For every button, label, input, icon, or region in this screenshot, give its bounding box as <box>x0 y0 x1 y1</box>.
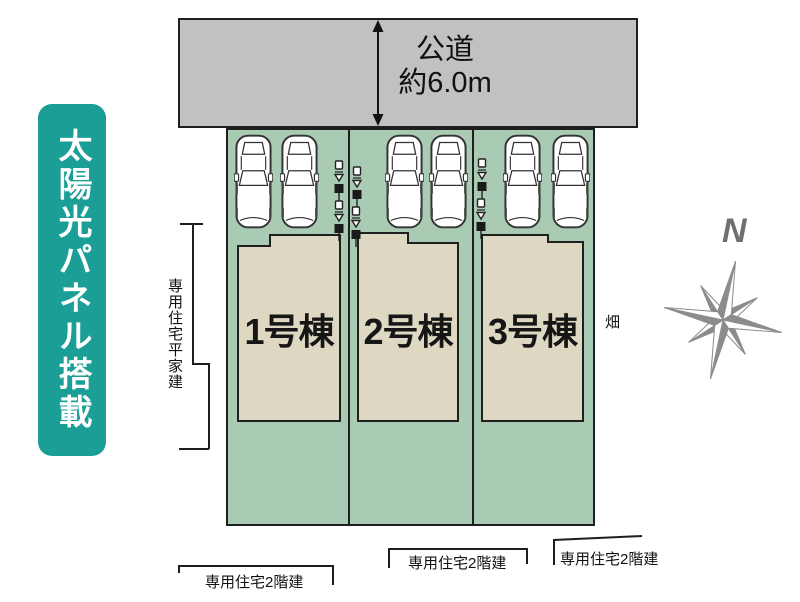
building-1-label: 1号棟 <box>237 303 341 355</box>
car-icon <box>234 133 273 230</box>
utility-meter-icon <box>474 198 488 240</box>
car-icon <box>280 133 319 230</box>
utility-meter-icon <box>332 160 346 202</box>
car-icon <box>385 133 424 230</box>
south-neighbor-label-2: 専用住宅2階建 <box>408 552 506 573</box>
north-label: N <box>722 212 747 251</box>
car-icon <box>503 133 542 230</box>
utility-meter-icon <box>475 158 489 200</box>
lot-divider-2-3 <box>472 128 474 526</box>
utility-meter-icon <box>350 166 364 208</box>
site-plan: 太陽光パネル搭載 公道 約6.0m 1号棟 2号棟 3号棟 専用住宅平家建 <box>0 0 800 602</box>
road-label: 公道 約6.0m <box>380 34 510 100</box>
car-icon <box>429 133 468 230</box>
west-neighbor-label: 専用住宅平家建 <box>164 278 185 390</box>
solar-panel-banner-text: 太陽光パネル搭載 <box>55 128 89 432</box>
road-name: 公道 <box>380 34 510 67</box>
east-neighbor-label: 畑 <box>605 311 620 332</box>
car-icon <box>551 133 590 230</box>
solar-panel-banner: 太陽光パネル搭載 <box>38 104 106 456</box>
south-neighbor-label-1: 専用住宅2階建 <box>205 571 303 592</box>
south-neighbor-label-3: 専用住宅2階建 <box>560 548 658 569</box>
road-width-value: 約6.0m <box>380 67 510 100</box>
utility-meter-icon <box>332 200 346 242</box>
building-2-label: 2号棟 <box>357 303 459 355</box>
building-3-label: 3号棟 <box>481 303 584 355</box>
compass-rose-icon <box>660 257 786 383</box>
utility-meter-icon <box>349 206 363 248</box>
